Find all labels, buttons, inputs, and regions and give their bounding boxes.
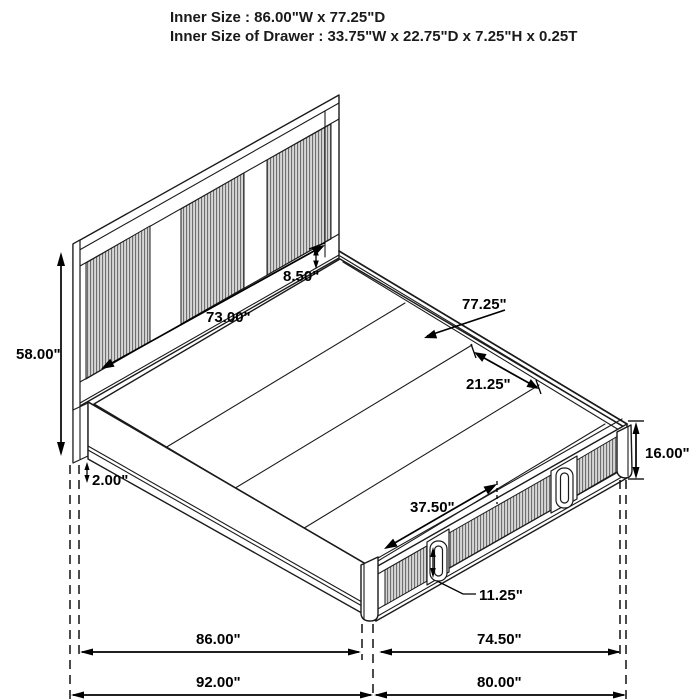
dim-drawer-width-label: 37.50" bbox=[410, 499, 455, 516]
dim-arrowhead bbox=[374, 692, 387, 699]
dim-inner-width: 86.00" bbox=[80, 631, 361, 656]
dim-overall-width-label: 92.00" bbox=[196, 674, 241, 691]
dim-arrowhead bbox=[348, 649, 361, 656]
dim-arrowhead bbox=[360, 692, 373, 699]
dim-overall-width: 92.00" bbox=[71, 674, 373, 699]
dim-arrowhead bbox=[633, 422, 640, 434]
dim-foot-inner-width: 74.50" bbox=[379, 631, 621, 656]
dim-arrowhead bbox=[84, 475, 89, 483]
dim-arrowhead bbox=[80, 649, 93, 656]
dim-foot-inner-width-label: 74.50" bbox=[477, 631, 522, 648]
dim-arrowhead bbox=[84, 462, 89, 470]
drawer-handle-2-slot bbox=[561, 473, 569, 503]
dim-inner-depth-label: 77.25" bbox=[462, 296, 507, 313]
dim-arrowhead bbox=[71, 692, 84, 699]
dim-slat-section-label: 21.25" bbox=[466, 376, 511, 393]
dim-overall-depth-label: 80.00" bbox=[477, 674, 522, 691]
dim-headboard-rail-label: 8.50" bbox=[283, 268, 319, 285]
dim-headboard-height: 58.00" bbox=[16, 252, 65, 456]
dim-footboard-height: 16.00" bbox=[628, 421, 690, 479]
diagram-title: Inner Size : 86.00"W x 77.25"D Inner Siz… bbox=[170, 9, 577, 45]
dim-headboard-height-label: 58.00" bbox=[16, 346, 61, 363]
dim-floor-clearance-label: 2.00" bbox=[92, 472, 128, 489]
title-line-1: Inner Size : 86.00"W x 77.25"D bbox=[170, 9, 385, 26]
dim-drawer-height-label: 11.25" bbox=[479, 587, 523, 604]
dim-arrowhead bbox=[633, 467, 640, 479]
bed-dimension-diagram: Inner Size : 86.00"W x 77.25"D Inner Siz… bbox=[0, 0, 700, 700]
title-line-2: Inner Size of Drawer : 33.75"W x 22.75"D… bbox=[170, 28, 577, 45]
dim-inner-width-label: 86.00" bbox=[196, 631, 241, 648]
dim-overall-depth: 80.00" bbox=[374, 674, 626, 699]
drawer-handle-1-slot bbox=[435, 546, 443, 576]
dim-arrowhead bbox=[57, 442, 65, 456]
dim-arrowhead bbox=[613, 692, 626, 699]
dim-arrowhead bbox=[379, 649, 392, 656]
dim-footboard-height-label: 16.00" bbox=[645, 445, 690, 462]
right-corner-post bbox=[617, 425, 632, 478]
diagram-canvas: Inner Size : 86.00"W x 77.25"D Inner Siz… bbox=[0, 0, 700, 700]
dim-arrowhead bbox=[57, 252, 65, 266]
dim-arrowhead bbox=[608, 649, 621, 656]
dim-headboard-inner-width-label: 73.00" bbox=[206, 309, 251, 326]
